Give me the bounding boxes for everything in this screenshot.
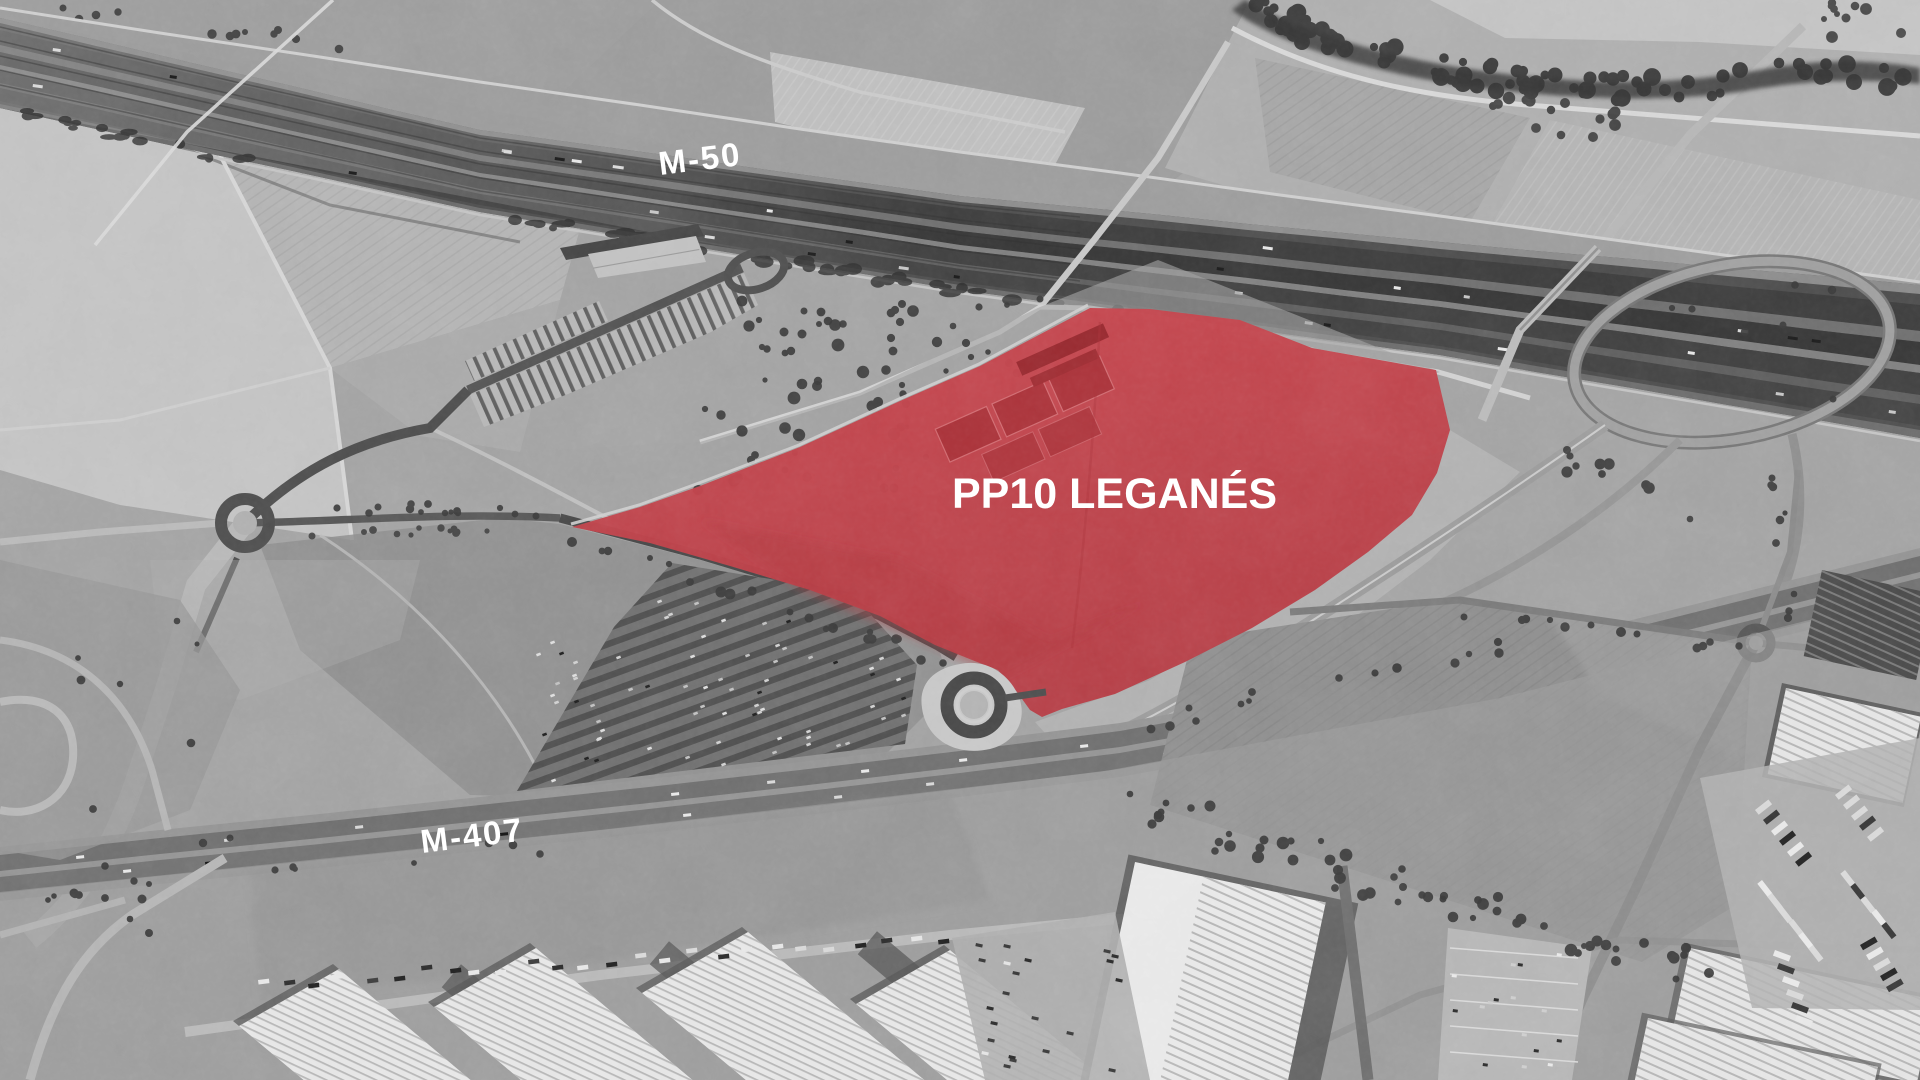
svg-text:PP10 LEGANÉS: PP10 LEGANÉS [952, 470, 1277, 518]
